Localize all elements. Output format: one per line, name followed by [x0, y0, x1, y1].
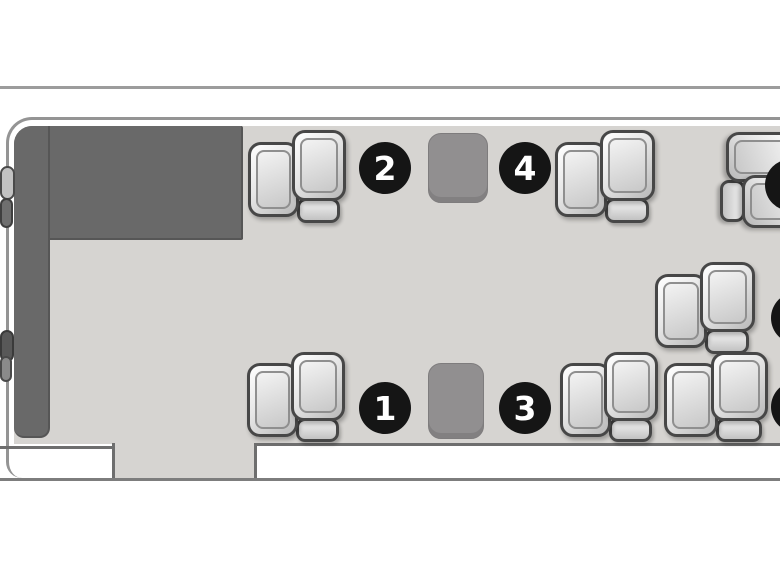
seat-pad	[663, 282, 699, 341]
seat-cushion-right	[600, 130, 655, 201]
seat-top-left	[248, 130, 346, 227]
hull-bottom-line	[0, 478, 780, 481]
table-bottom	[428, 363, 484, 439]
seat-cushion-right	[291, 352, 345, 421]
seat-pad	[299, 360, 337, 413]
seat-top-middle	[555, 130, 655, 227]
cabin-contents-layer: 1234	[0, 0, 780, 574]
seat-cushion-right	[700, 262, 755, 332]
seat-pad	[568, 371, 603, 428]
seat-bottom-middle	[560, 352, 658, 446]
seat-footrest	[297, 198, 340, 223]
seat-number-badge: 3	[499, 382, 551, 434]
seat-number-badge-clipped	[771, 381, 780, 433]
seat-footrest	[705, 329, 749, 354]
seat-pad	[672, 371, 710, 428]
seat-pad	[612, 360, 650, 413]
seat-cushion-right	[604, 352, 658, 421]
seat-pad	[255, 371, 290, 428]
seat-bottom-left	[247, 352, 345, 446]
seat-bottom-right	[664, 352, 768, 446]
seat-footrest	[609, 418, 652, 442]
aircraft-floorplan-image: 1234	[0, 0, 780, 574]
seat-number-badge: 2	[359, 142, 411, 194]
seat-pad	[300, 138, 338, 193]
seat-cushion-right	[711, 352, 768, 421]
table-top	[428, 133, 488, 203]
seat-footrest	[716, 418, 762, 442]
seat-pad	[708, 270, 747, 324]
seat-middle-right	[655, 262, 755, 358]
seat-number-badge: 1	[359, 382, 411, 434]
seat-number-badge: 4	[499, 142, 551, 194]
seat-cushion-right	[292, 130, 346, 201]
seat-pad	[563, 150, 599, 210]
seat-cushion-left	[664, 363, 718, 436]
seat-pad	[256, 150, 291, 210]
seat-pad	[719, 360, 760, 413]
seat-footrest	[605, 198, 649, 223]
seat-number-badge-clipped	[771, 292, 780, 344]
seat-footrest	[296, 418, 339, 442]
seat-pad	[608, 138, 647, 193]
